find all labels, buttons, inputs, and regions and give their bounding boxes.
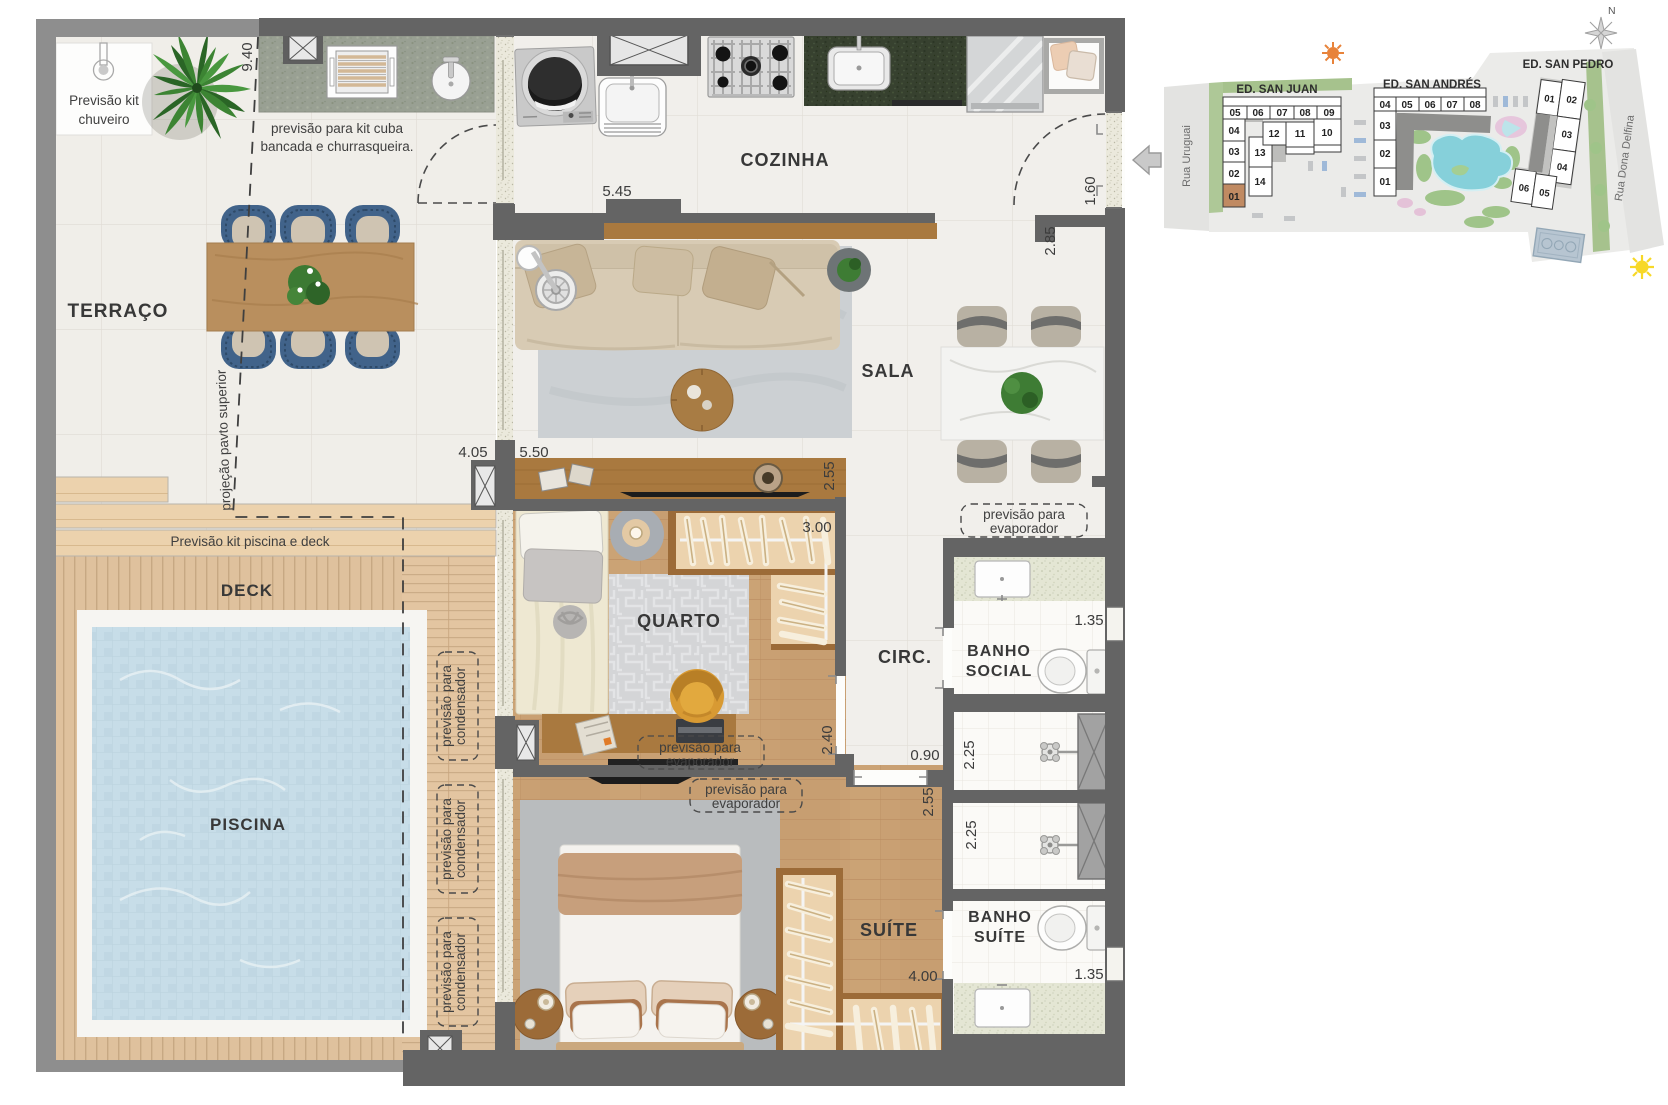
svg-text:SALA: SALA: [862, 361, 915, 381]
svg-text:05: 05: [1229, 108, 1241, 119]
svg-text:SOCIAL: SOCIAL: [966, 663, 1032, 680]
svg-text:ED. SAN JUAN: ED. SAN JUAN: [1236, 84, 1317, 96]
svg-text:condensador: condensador: [453, 666, 468, 745]
svg-text:DECK: DECK: [221, 581, 273, 600]
svg-text:evaporador: evaporador: [712, 796, 781, 811]
svg-text:previsão para: previsão para: [659, 740, 741, 755]
svg-text:SUÍTE: SUÍTE: [860, 919, 918, 940]
svg-text:Rua Uruguai: Rua Uruguai: [1181, 125, 1193, 187]
svg-text:02: 02: [1379, 149, 1391, 160]
svg-text:2.40: 2.40: [819, 725, 836, 754]
svg-text:03: 03: [1228, 147, 1240, 158]
svg-text:03: 03: [1561, 129, 1573, 141]
svg-text:5.50: 5.50: [519, 444, 548, 461]
svg-text:03: 03: [1379, 121, 1391, 132]
svg-text:4.05: 4.05: [458, 444, 487, 461]
svg-text:N: N: [1608, 5, 1616, 17]
svg-text:05: 05: [1401, 100, 1413, 111]
svg-text:04: 04: [1379, 100, 1391, 111]
svg-text:previsão para: previsão para: [705, 782, 787, 797]
svg-text:06: 06: [1252, 108, 1264, 119]
svg-text:02: 02: [1566, 94, 1578, 106]
svg-text:bancada e churrasqueira.: bancada e churrasqueira.: [260, 139, 413, 154]
svg-text:0.90: 0.90: [910, 747, 939, 764]
svg-text:TERRAÇO: TERRAÇO: [68, 301, 169, 322]
svg-text:2.25: 2.25: [961, 740, 978, 769]
svg-text:previsão para: previsão para: [439, 798, 454, 880]
svg-text:5.45: 5.45: [602, 183, 631, 200]
svg-text:3.00: 3.00: [802, 519, 831, 536]
svg-text:previsão para: previsão para: [439, 665, 454, 747]
svg-text:11: 11: [1295, 129, 1306, 140]
svg-text:09: 09: [1323, 108, 1335, 119]
svg-text:2.55: 2.55: [821, 461, 838, 490]
svg-text:01: 01: [1379, 177, 1391, 188]
svg-text:01: 01: [1228, 192, 1240, 203]
svg-text:13: 13: [1254, 148, 1266, 159]
svg-text:1.60: 1.60: [1082, 176, 1099, 205]
svg-text:07: 07: [1446, 100, 1458, 111]
svg-text:14: 14: [1254, 177, 1266, 188]
svg-text:COZINHA: COZINHA: [741, 150, 830, 170]
svg-text:06: 06: [1424, 100, 1436, 111]
svg-text:previsão para: previsão para: [439, 931, 454, 1013]
svg-text:PISCINA: PISCINA: [210, 815, 286, 834]
svg-text:evaporador: evaporador: [990, 521, 1059, 536]
svg-text:previsão para kit cuba: previsão para kit cuba: [271, 121, 404, 136]
svg-text:10: 10: [1321, 128, 1333, 139]
svg-text:Previsão kit: Previsão kit: [69, 93, 139, 108]
svg-text:SUÍTE: SUÍTE: [974, 927, 1026, 946]
svg-text:BANHO: BANHO: [968, 909, 1032, 926]
svg-text:02: 02: [1228, 169, 1240, 180]
svg-text:evaporador: evaporador: [666, 754, 735, 769]
svg-text:04: 04: [1228, 126, 1240, 137]
svg-text:1.35: 1.35: [1074, 966, 1103, 983]
svg-text:condensador: condensador: [453, 799, 468, 878]
svg-text:12: 12: [1268, 129, 1280, 140]
svg-text:chuveiro: chuveiro: [78, 112, 129, 127]
svg-text:ED. SAN PEDRO: ED. SAN PEDRO: [1523, 59, 1614, 71]
svg-text:condensador: condensador: [453, 932, 468, 1011]
svg-text:BANHO: BANHO: [967, 643, 1031, 660]
svg-text:07: 07: [1276, 108, 1288, 119]
svg-text:9.40: 9.40: [239, 42, 256, 71]
svg-text:08: 08: [1299, 108, 1311, 119]
svg-text:previsão para: previsão para: [983, 507, 1065, 522]
svg-text:2.85: 2.85: [1042, 226, 1059, 255]
svg-text:06: 06: [1518, 182, 1530, 194]
svg-text:2.25: 2.25: [963, 820, 980, 849]
svg-text:QUARTO: QUARTO: [637, 611, 721, 631]
svg-text:4.00: 4.00: [908, 968, 937, 985]
svg-text:CIRC.: CIRC.: [878, 647, 932, 667]
svg-text:08: 08: [1469, 100, 1481, 111]
svg-text:1.35: 1.35: [1074, 612, 1103, 629]
svg-text:Previsão kit piscina e deck: Previsão kit piscina e deck: [170, 534, 329, 549]
svg-text:2.55: 2.55: [920, 787, 937, 816]
